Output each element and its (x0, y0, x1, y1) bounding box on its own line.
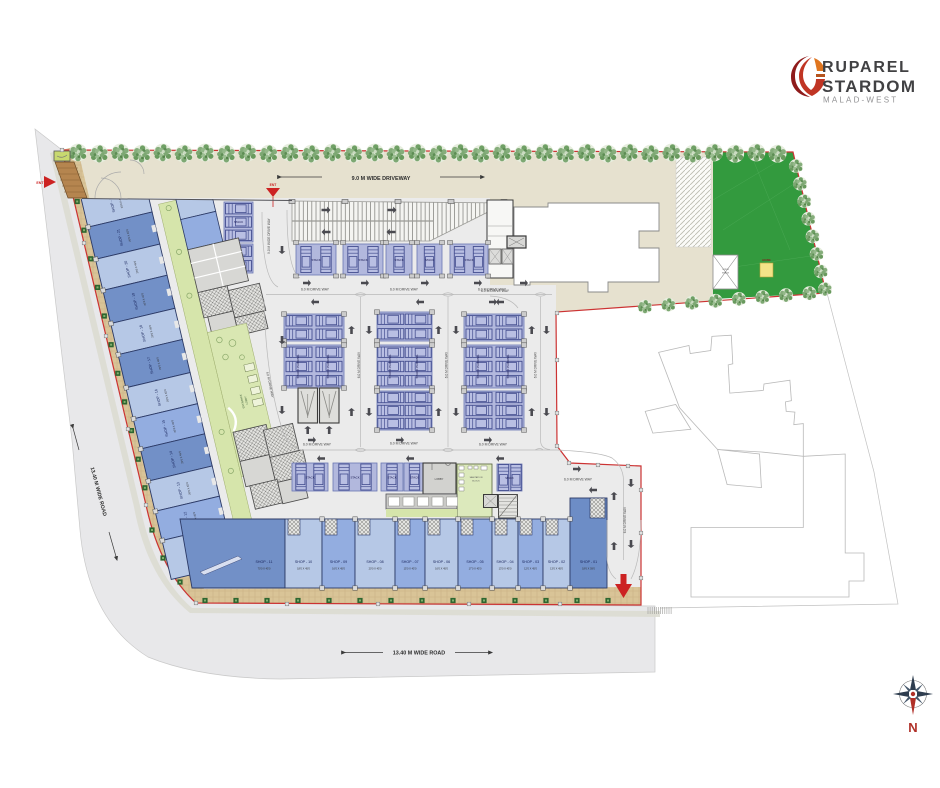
svg-text:13.40 M WIDE ROAD: 13.40 M WIDE ROAD (393, 651, 446, 657)
svg-text:6.0 M DRIVE WAY: 6.0 M DRIVE WAY (357, 351, 361, 378)
svg-text:STACK: STACK (410, 476, 419, 480)
svg-text:STACK: STACK (425, 258, 434, 262)
svg-text:ENT: ENT (270, 183, 278, 187)
svg-text:SPACE: SPACE (722, 272, 730, 275)
svg-text:SANITATION: SANITATION (470, 476, 483, 479)
svg-text:STACK: STACK (505, 476, 514, 480)
svg-text:20'0 X 45'0: 20'0 X 45'0 (369, 567, 382, 571)
svg-text:6.0 M DRIVE WAY: 6.0 M DRIVE WAY (390, 287, 419, 291)
svg-text:13'0 X 45'0: 13'0 X 45'0 (550, 567, 563, 571)
svg-text:17'0 X 45'0: 17'0 X 45'0 (469, 567, 482, 571)
svg-text:12'0 X 45'0: 12'0 X 45'0 (524, 567, 537, 571)
svg-text:6.0 M DRIVE WAY: 6.0 M DRIVE WAY (390, 442, 419, 446)
svg-text:SHOP - 01: SHOP - 01 (580, 560, 597, 564)
svg-text:SHOP - 04: SHOP - 04 (496, 560, 513, 564)
svg-text:6.0 M DRIVE WAY: 6.0 M DRIVE WAY (481, 289, 510, 293)
svg-text:STACK PARKING: STACK PARKING (326, 354, 330, 379)
svg-text:STACK: STACK (387, 476, 396, 480)
svg-text:STACK: STACK (305, 476, 314, 480)
svg-text:9.0 M WIDE DRIVEWAY: 9.0 M WIDE DRIVEWAY (352, 176, 411, 182)
svg-text:OPEN: OPEN (722, 269, 729, 271)
svg-text:SHOP - 08: SHOP - 08 (366, 560, 383, 564)
svg-text:6.0 M DRIVE WAY: 6.0 M DRIVE WAY (534, 351, 538, 378)
svg-text:6.0 M DRIVE WAY: 6.0 M DRIVE WAY (303, 443, 332, 447)
svg-text:SHOP - 10: SHOP - 10 (295, 560, 312, 564)
svg-text:STACK: STACK (464, 258, 473, 262)
svg-text:STARDOM: STARDOM (822, 77, 916, 96)
svg-text:SHOP - 02: SHOP - 02 (548, 560, 565, 564)
svg-text:6.0 M DRIVE WAY: 6.0 M DRIVE WAY (564, 478, 593, 482)
svg-text:STACK: STACK (234, 220, 243, 224)
svg-text:N: N (908, 720, 917, 735)
svg-text:16'0 X 45'0: 16'0 X 45'0 (332, 567, 345, 571)
svg-text:ENT: ENT (36, 181, 44, 185)
svg-text:STACK: STACK (358, 258, 367, 262)
svg-text:16'0 X 45'0: 16'0 X 45'0 (435, 567, 448, 571)
svg-text:70'0 X 45'0: 70'0 X 45'0 (258, 567, 271, 571)
svg-text:STACK PARKING: STACK PARKING (476, 354, 480, 379)
svg-text:6.0 M DRIVE WAY: 6.0 M DRIVE WAY (479, 443, 508, 447)
svg-text:STACK PARKING: STACK PARKING (296, 354, 300, 379)
svg-text:SHOP - 05: SHOP - 05 (466, 560, 483, 564)
svg-text:6.0 M DRIVE WAY: 6.0 M DRIVE WAY (301, 287, 330, 291)
svg-text:MALAD-WEST: MALAD-WEST (823, 96, 898, 105)
svg-text:6.0 M DRIVE WAY: 6.0 M DRIVE WAY (623, 506, 627, 533)
svg-text:LOBBY: LOBBY (435, 477, 444, 481)
svg-text:18'6 X 59'0: 18'6 X 59'0 (582, 567, 595, 571)
svg-text:BLOCK: BLOCK (472, 481, 480, 483)
svg-text:STACK PARKING: STACK PARKING (415, 354, 419, 379)
svg-text:STACK PARKING: STACK PARKING (388, 354, 392, 379)
svg-text:STACK: STACK (394, 258, 403, 262)
svg-text:9.0 M WIDE DRIVE WAY: 9.0 M WIDE DRIVE WAY (267, 217, 271, 253)
svg-text:STACK: STACK (311, 258, 320, 262)
svg-text:13'0 X 45'0: 13'0 X 45'0 (499, 567, 512, 571)
svg-text:SHOP - 09: SHOP - 09 (330, 560, 347, 564)
svg-text:SHOP - 07: SHOP - 07 (401, 560, 418, 564)
svg-text:RUPAREL: RUPAREL (822, 59, 911, 76)
svg-text:STACK: STACK (350, 476, 359, 480)
svg-text:SHOP - 06: SHOP - 06 (433, 560, 450, 564)
svg-text:18'0 X 45'0: 18'0 X 45'0 (297, 567, 310, 571)
svg-text:6.0 M DRIVE WAY: 6.0 M DRIVE WAY (445, 351, 449, 378)
svg-text:SHOP - 11: SHOP - 11 (255, 560, 272, 564)
svg-text:STACK PARKING: STACK PARKING (506, 354, 510, 379)
svg-text:SHOP - 03: SHOP - 03 (522, 560, 539, 564)
svg-text:HOUSE: HOUSE (762, 259, 771, 262)
svg-text:15'0 X 45'0: 15'0 X 45'0 (404, 567, 417, 571)
